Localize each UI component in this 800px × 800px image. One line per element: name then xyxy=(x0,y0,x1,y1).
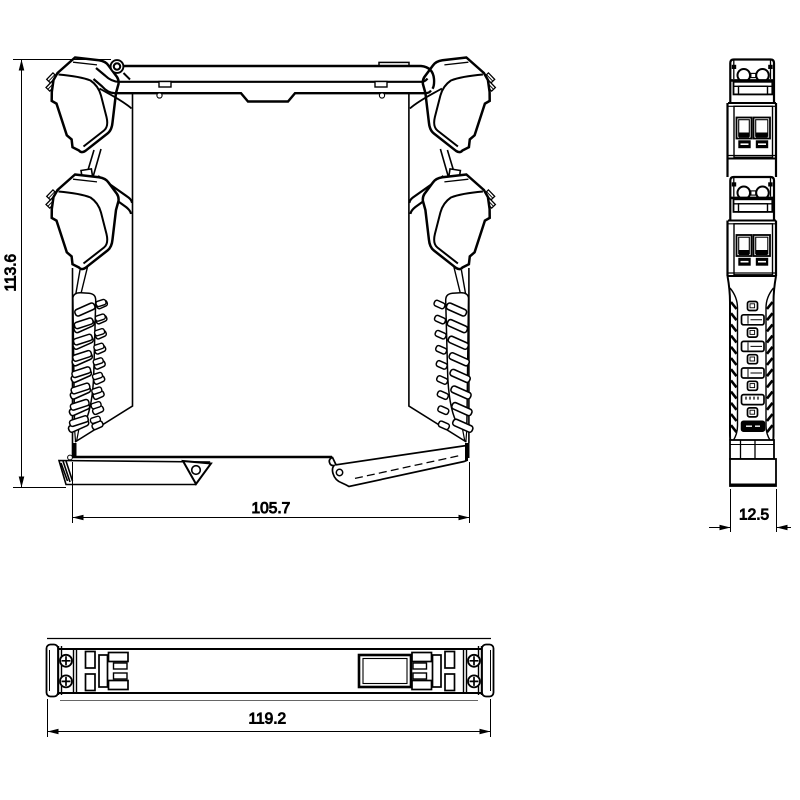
svg-text:113.6: 113.6 xyxy=(3,254,20,292)
svg-text:119.2: 119.2 xyxy=(249,711,287,728)
svg-text:12.5: 12.5 xyxy=(739,507,769,524)
svg-text:105.7: 105.7 xyxy=(252,500,291,517)
